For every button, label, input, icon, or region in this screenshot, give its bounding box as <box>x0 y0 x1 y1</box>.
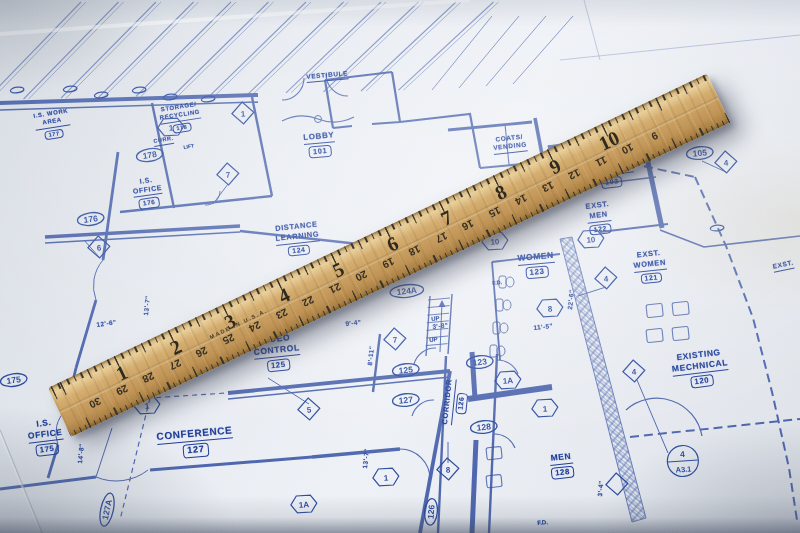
dimension-dim-13-7b: 13'-7" <box>361 448 370 469</box>
tag-hexagon-1: 1 <box>371 467 401 492</box>
tag-value: 1A <box>299 500 310 510</box>
tag-diamond-6: 6 <box>86 234 112 264</box>
room-name-line: VESTIBULE <box>306 69 349 83</box>
tag-value: 6 <box>96 243 102 252</box>
tag-diamond-7: 7 <box>215 161 241 191</box>
room-label-is-work-area: I.S. WORKAREA177 <box>33 108 72 142</box>
dimension-dim-14-8: 14'-8" <box>76 443 85 464</box>
tag-value: 105 <box>692 147 707 158</box>
tag-value: 1 <box>542 404 548 413</box>
room-label-exst-women: EXST.WOMEN121 <box>632 248 668 286</box>
tag-diamond-blank <box>604 471 630 501</box>
tag-diamond-1: 1 <box>230 100 256 130</box>
tag-value: 1 <box>168 123 174 132</box>
tag-value: 10 <box>490 237 500 247</box>
tag-value: 1 <box>383 473 389 482</box>
tag-oval-105: 105 <box>685 144 716 166</box>
tag-value: 4 <box>603 274 609 283</box>
tag-diamond-4: 4 <box>713 149 739 179</box>
tag-oval-123: 123 <box>465 353 496 375</box>
annotation-ann-fd2: F.D. <box>492 279 502 286</box>
tag-oval-124A: 124A <box>388 282 426 305</box>
tag-oval-127A: 127A <box>96 490 122 529</box>
room-name-line: LOBBY <box>303 130 335 145</box>
room-number: 125 <box>266 358 290 372</box>
room-label-exst-edge: EXST. <box>772 259 795 274</box>
blueprint-photo: I.S. WORKAREA177STORAGE/RECYCLING178CURR… <box>0 0 800 533</box>
tag-hexagon-1A: 1A <box>289 494 319 519</box>
tag-value: 7 <box>225 170 231 179</box>
tag-diamond-5: 5 <box>296 396 322 426</box>
room-name-line: CONFERENCE <box>156 423 233 445</box>
tag-diamond-8: 8 <box>435 456 461 486</box>
dimension-dim-3-8: 3'-8" <box>432 321 449 330</box>
detail-sheet: A3.1 <box>675 464 691 474</box>
room-label-corridor-126: CORRIDOR126 <box>440 379 469 427</box>
room-label-lobby: LOBBY101 <box>303 130 336 159</box>
dimension-dim-3-4: 3'-4" <box>596 480 605 497</box>
room-label-is-office-175: I.S.OFFICE175 <box>26 416 65 458</box>
tag-diamond-4: 4 <box>621 358 647 388</box>
tag-oval-blank <box>708 217 726 237</box>
room-label-men-128: MEN128 <box>549 451 575 480</box>
tag-oval-blank <box>8 79 26 99</box>
tag-value: 8 <box>547 304 553 313</box>
tag-value: 4 <box>723 158 729 167</box>
room-number: 120 <box>690 374 714 389</box>
annotation-ann-fd1: F.D. <box>537 519 548 526</box>
room-number: 101 <box>309 145 332 158</box>
room-label-is-office-176: I.S.OFFICE176 <box>131 174 165 210</box>
room-number: 176 <box>138 197 160 210</box>
tag-value: 4 <box>631 367 637 376</box>
tag-oval-176: 176 <box>75 210 106 233</box>
room-label-coats-vending: COATS/VENDING <box>492 132 528 154</box>
room-label-women: WOMEN123 <box>517 250 556 280</box>
dimension-dim-9-4: 9'-4" <box>345 318 362 327</box>
room-label-distance-learning: DISTANCELEARNING124 <box>274 219 321 258</box>
tag-oval-125: 125 <box>391 361 422 383</box>
room-number: 123 <box>525 265 549 279</box>
annotation-ann-up1: UP <box>431 315 440 322</box>
dimension-dim-22-6: 22'-6" <box>566 289 575 310</box>
room-number: 127 <box>183 443 209 459</box>
annotation-ann-up2: UP <box>429 336 438 343</box>
tag-hexagon-1: 1 <box>156 117 186 142</box>
tag-hexagon-8: 8 <box>535 298 565 323</box>
tag-value: 126 <box>425 504 436 519</box>
tag-oval-blank <box>130 79 148 99</box>
tag-diamond-4: 4 <box>593 265 619 295</box>
room-number: 128 <box>551 466 575 480</box>
dimension-dim-13-7a: 13'-7" <box>142 295 151 316</box>
tag-oval-128: 128 <box>469 418 500 440</box>
tag-value: 124A <box>396 285 417 297</box>
tag-oval-blank <box>92 84 110 104</box>
tag-oval-126: 126 <box>422 497 443 528</box>
tag-hexagon-1: 1 <box>530 398 560 423</box>
room-name-line: EXST. <box>772 259 795 274</box>
tag-value: 175 <box>6 374 22 386</box>
tag-oval-blank <box>199 88 217 108</box>
room-label-existing-mechanical: EXISTINGMECHNICAL120 <box>670 346 731 391</box>
room-number: 177 <box>44 128 64 140</box>
room-name-line: WOMEN <box>517 250 555 266</box>
tag-value: 1A <box>503 376 514 386</box>
tag-value: 178 <box>142 149 158 161</box>
tag-hexagon-10: 10 <box>576 229 606 254</box>
tag-oval-178: 178 <box>134 145 166 168</box>
annotation-ann-lift: LIFT <box>183 142 194 150</box>
tag-hexagon-1A: 1A <box>493 370 523 395</box>
room-name-line: WOMEN <box>633 257 667 272</box>
dimension-dim-11-5: 11'-5" <box>533 322 553 331</box>
tag-diamond-7: 7 <box>382 326 408 356</box>
tag-value: 10 <box>586 235 596 245</box>
room-name-line: MEN <box>586 209 611 224</box>
tag-oval-blank <box>161 86 179 106</box>
tag-value: 5 <box>306 405 312 414</box>
tag-oval-127: 127 <box>391 391 422 413</box>
room-name-line: MEN <box>549 451 573 466</box>
tag-value: 176 <box>83 213 99 225</box>
room-name-line: VENDING <box>493 141 528 155</box>
detail-number: 4 <box>680 449 686 459</box>
tag-value: 125 <box>398 364 413 375</box>
tag-value: 127 <box>398 394 413 405</box>
room-name-line: OFFICE <box>27 427 63 444</box>
room-number: 175 <box>35 442 59 457</box>
room-number: 126 <box>455 392 468 414</box>
tag-value: 7 <box>392 335 398 344</box>
room-name-line: CORRIDOR <box>440 379 456 426</box>
tag-circle-detail-4: 4A3.1 <box>664 442 703 484</box>
dimension-dim-8-11: 8'-11" <box>366 345 375 365</box>
room-label-vestibule: VESTIBULE <box>306 69 349 83</box>
tag-value: 1 <box>240 109 246 118</box>
tag-oval-blank <box>61 78 79 98</box>
tag-value: 8 <box>445 465 451 474</box>
tag-value: 123 <box>472 356 487 367</box>
room-number: 121 <box>640 272 662 285</box>
tag-value: 128 <box>476 421 491 432</box>
room-number: 124 <box>288 244 310 257</box>
tag-oval-175: 175 <box>0 371 30 394</box>
dimension-dim-12-6: 12'-6" <box>96 318 117 328</box>
room-label-conference: CONFERENCE127 <box>156 423 234 460</box>
tag-value: 1 <box>144 401 150 410</box>
